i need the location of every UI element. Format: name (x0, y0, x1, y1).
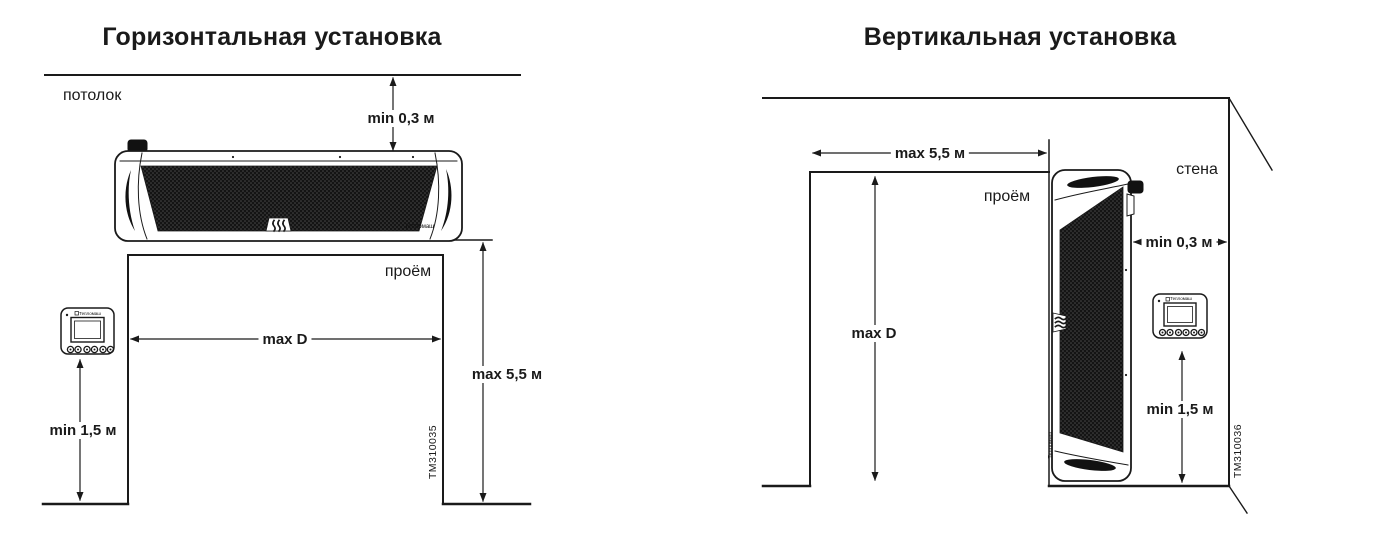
dim-opening-width-label: max D (258, 331, 311, 348)
remote-brand-text: Тепломаш (73, 311, 107, 316)
heat-waves-icon (266, 218, 291, 231)
drawing-number-horizontal: ТМ310035 (427, 420, 439, 484)
vertical-title: Вертикальная установка (864, 23, 1177, 52)
air-curtain-vertical (1052, 170, 1143, 481)
dim-ceiling-gap-label: min 0,3 м (364, 110, 439, 127)
opening-outline (128, 255, 443, 504)
mounting-bracket-v (1127, 194, 1134, 216)
dim-opening-width-label-v: max 5,5 м (891, 145, 969, 162)
diagram-linework (0, 0, 1380, 537)
installation-diagram-page: Горизонтальная установка потолок min 0,3… (0, 0, 1380, 537)
device-logo-text: Тепломаш (386, 224, 434, 231)
remote-led (66, 314, 68, 316)
remote-led-v (1158, 300, 1160, 302)
cable-gland-icon-v (1128, 181, 1143, 193)
remote-brand-text-v: Тепломаш (1164, 296, 1198, 301)
wall-corner-diagonal-top (1229, 98, 1272, 170)
opening-label-v: проём (984, 188, 1030, 206)
intake-grille-v (1060, 187, 1123, 452)
device-logo-text-v: Тепломаш (1048, 425, 1054, 465)
dim-remote-height-label: min 1,5 м (46, 422, 121, 439)
drawing-number-vertical: ТМ310036 (1232, 419, 1244, 483)
wall-corner-diagonal-bottom (1229, 486, 1247, 513)
dim-remote-height-label-v: min 1,5 м (1143, 401, 1218, 418)
opening-label: проём (385, 263, 431, 281)
dim-opening-height-label: max D (847, 325, 900, 342)
heat-waves-icon-v (1053, 313, 1066, 332)
dim-mount-height-label: max 5,5 м (468, 366, 546, 383)
ceiling-label: потолок (63, 87, 121, 105)
wall-label: стена (1176, 161, 1218, 179)
dim-wall-gap-label: min 0,3 м (1142, 234, 1217, 251)
opening-outline-v (810, 172, 1049, 486)
horizontal-title: Горизонтальная установка (102, 23, 441, 52)
